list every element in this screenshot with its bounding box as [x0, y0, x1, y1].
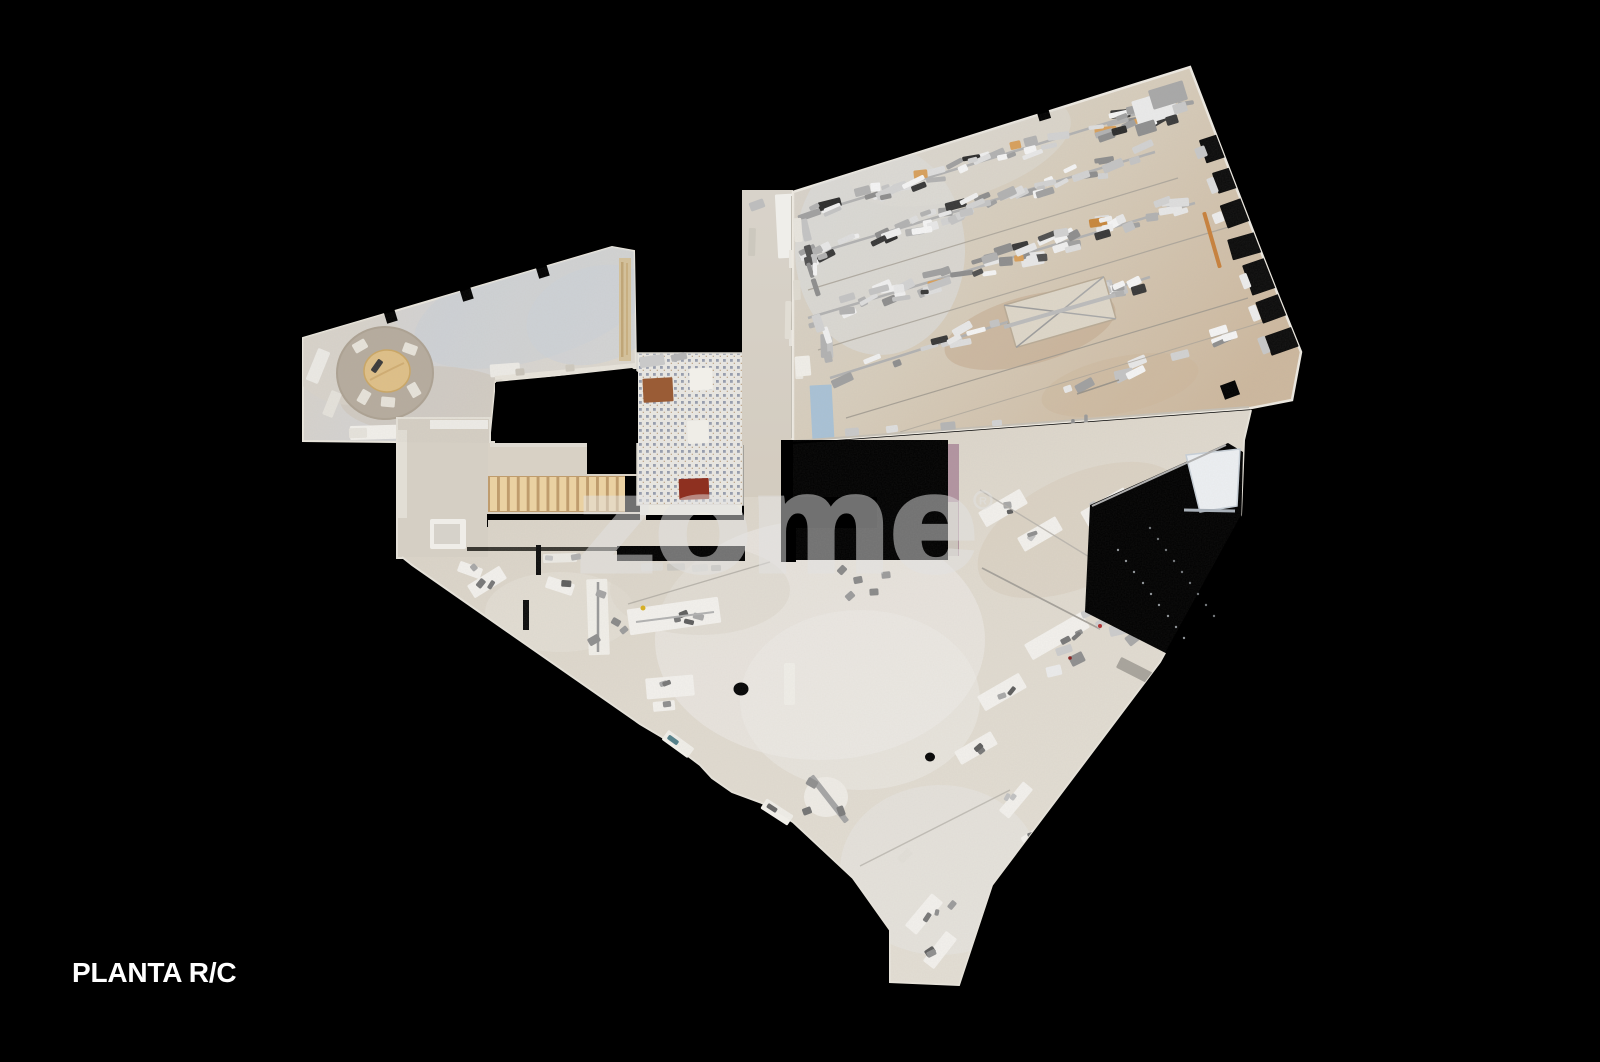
svg-text:R: R	[979, 496, 987, 508]
svg-text:zome: zome	[577, 447, 977, 601]
svg-text:PLANTA R/C: PLANTA R/C	[72, 957, 236, 988]
